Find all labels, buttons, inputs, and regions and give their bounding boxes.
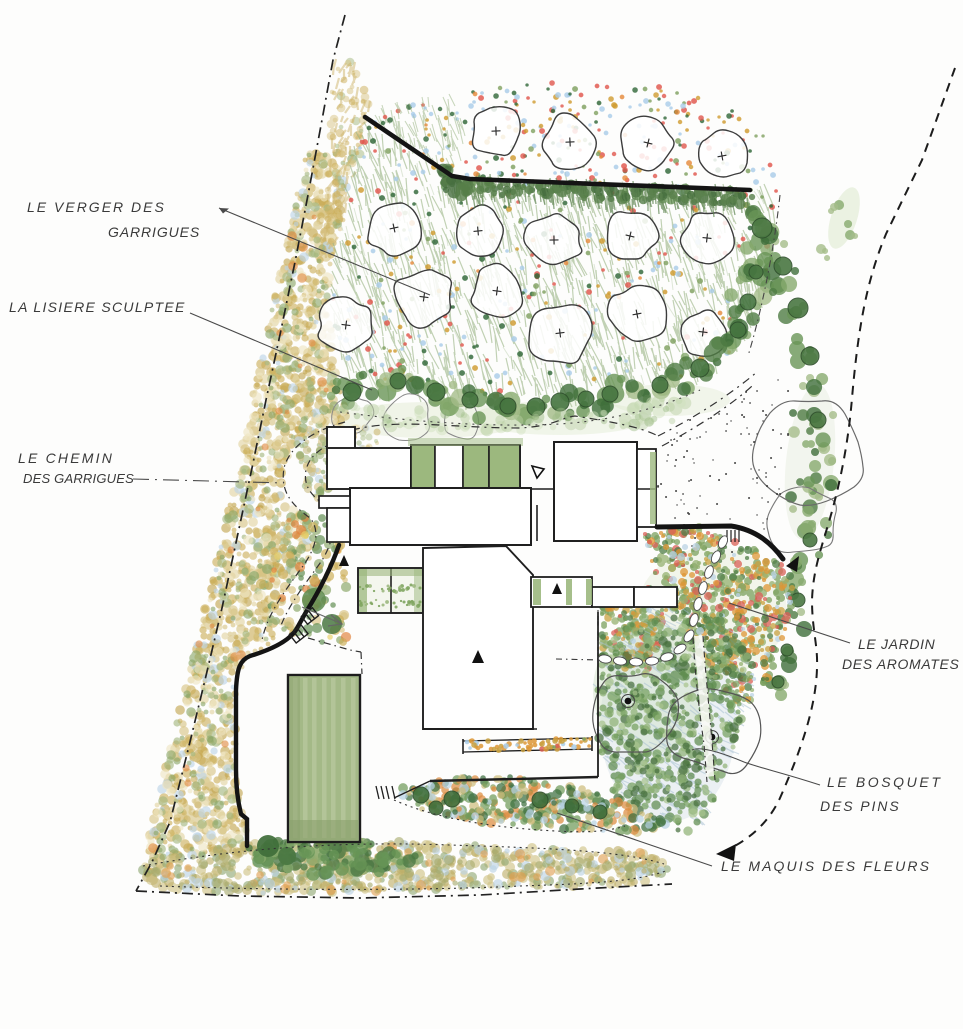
svg-text:LA LISIERE SCULPTEE: LA LISIERE SCULPTEE: [9, 299, 186, 315]
svg-text:LE MAQUIS DES FLEURS: LE MAQUIS DES FLEURS: [721, 858, 931, 874]
svg-text:LE VERGER DES: LE VERGER DES: [27, 199, 166, 215]
svg-text:LE CHEMIN: LE CHEMIN: [18, 450, 114, 466]
svg-text:DES AROMATES: DES AROMATES: [842, 656, 959, 672]
svg-text:DES PINS: DES PINS: [820, 798, 901, 814]
svg-text:GARRIGUES: GARRIGUES: [108, 224, 200, 240]
svg-text:LE JARDIN: LE JARDIN: [858, 636, 936, 652]
svg-text:DES GARRIGUES: DES GARRIGUES: [23, 471, 134, 486]
svg-text:LE BOSQUET: LE BOSQUET: [827, 774, 942, 790]
